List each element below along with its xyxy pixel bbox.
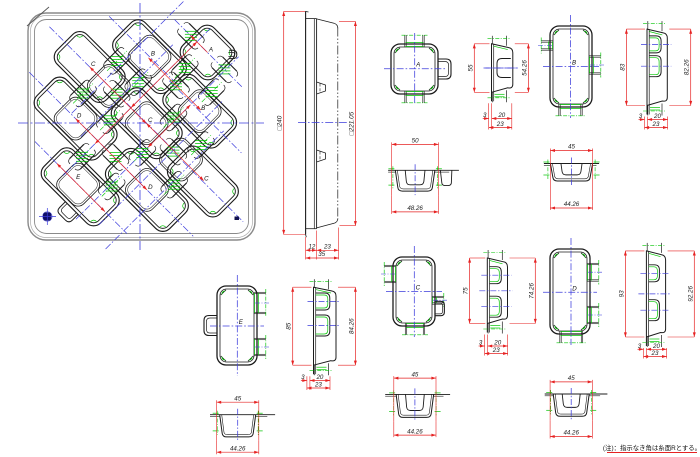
svg-text:B: B xyxy=(151,51,155,58)
svg-text:45: 45 xyxy=(234,395,241,402)
svg-text:44.26: 44.26 xyxy=(564,201,580,208)
svg-text:B: B xyxy=(201,105,205,112)
svg-text:55: 55 xyxy=(467,64,474,72)
svg-text:□221.05: □221.05 xyxy=(348,111,355,135)
svg-text:45: 45 xyxy=(568,375,575,382)
svg-text:85: 85 xyxy=(286,322,293,330)
svg-text:45: 45 xyxy=(411,371,418,378)
svg-text:3: 3 xyxy=(301,374,305,381)
svg-text:12: 12 xyxy=(308,243,315,250)
svg-text:44.26: 44.26 xyxy=(230,445,246,452)
svg-text:92.26: 92.26 xyxy=(687,286,694,302)
svg-text:A: A xyxy=(415,62,420,69)
svg-text:23: 23 xyxy=(492,347,500,354)
svg-text:20: 20 xyxy=(652,343,660,350)
svg-text:C: C xyxy=(148,117,153,124)
svg-text:C: C xyxy=(204,176,209,183)
svg-text:20: 20 xyxy=(493,340,501,347)
svg-text:3: 3 xyxy=(479,340,483,347)
svg-text:45: 45 xyxy=(568,144,575,151)
svg-text:54.26: 54.26 xyxy=(521,60,528,76)
svg-text:23: 23 xyxy=(652,121,660,128)
svg-text:□240: □240 xyxy=(277,115,284,130)
svg-text:3: 3 xyxy=(483,112,487,119)
svg-text:84.26: 84.26 xyxy=(348,318,355,334)
svg-text:B: B xyxy=(572,60,576,67)
svg-text:50: 50 xyxy=(412,138,419,145)
svg-text:82.26: 82.26 xyxy=(684,59,691,75)
svg-text:D: D xyxy=(148,184,153,191)
svg-text:20: 20 xyxy=(653,113,661,120)
svg-text:23: 23 xyxy=(314,382,322,389)
svg-text:D: D xyxy=(572,285,577,292)
svg-text:20: 20 xyxy=(497,112,505,119)
svg-text:C: C xyxy=(416,285,421,292)
svg-text:3: 3 xyxy=(638,343,642,350)
svg-text:83: 83 xyxy=(619,63,626,71)
svg-text:44.26: 44.26 xyxy=(563,430,579,437)
svg-text:23: 23 xyxy=(323,243,331,250)
svg-text:74.26: 74.26 xyxy=(528,282,535,298)
svg-text:20: 20 xyxy=(315,374,323,381)
svg-text:35: 35 xyxy=(318,251,325,258)
svg-text:48.26: 48.26 xyxy=(407,205,423,212)
svg-text:23: 23 xyxy=(496,121,504,128)
svg-text:93: 93 xyxy=(618,290,625,298)
svg-text:23: 23 xyxy=(651,350,659,357)
svg-text:75: 75 xyxy=(463,287,470,295)
svg-text:C: C xyxy=(91,61,96,68)
svg-text:3: 3 xyxy=(639,113,643,120)
svg-text:D: D xyxy=(77,113,82,120)
svg-text:(注)：指示なき角は糸面Rとする。: (注)：指示なき角は糸面Rとする。 xyxy=(603,443,700,452)
svg-text:A: A xyxy=(208,47,213,54)
svg-text:44.26: 44.26 xyxy=(407,428,423,435)
